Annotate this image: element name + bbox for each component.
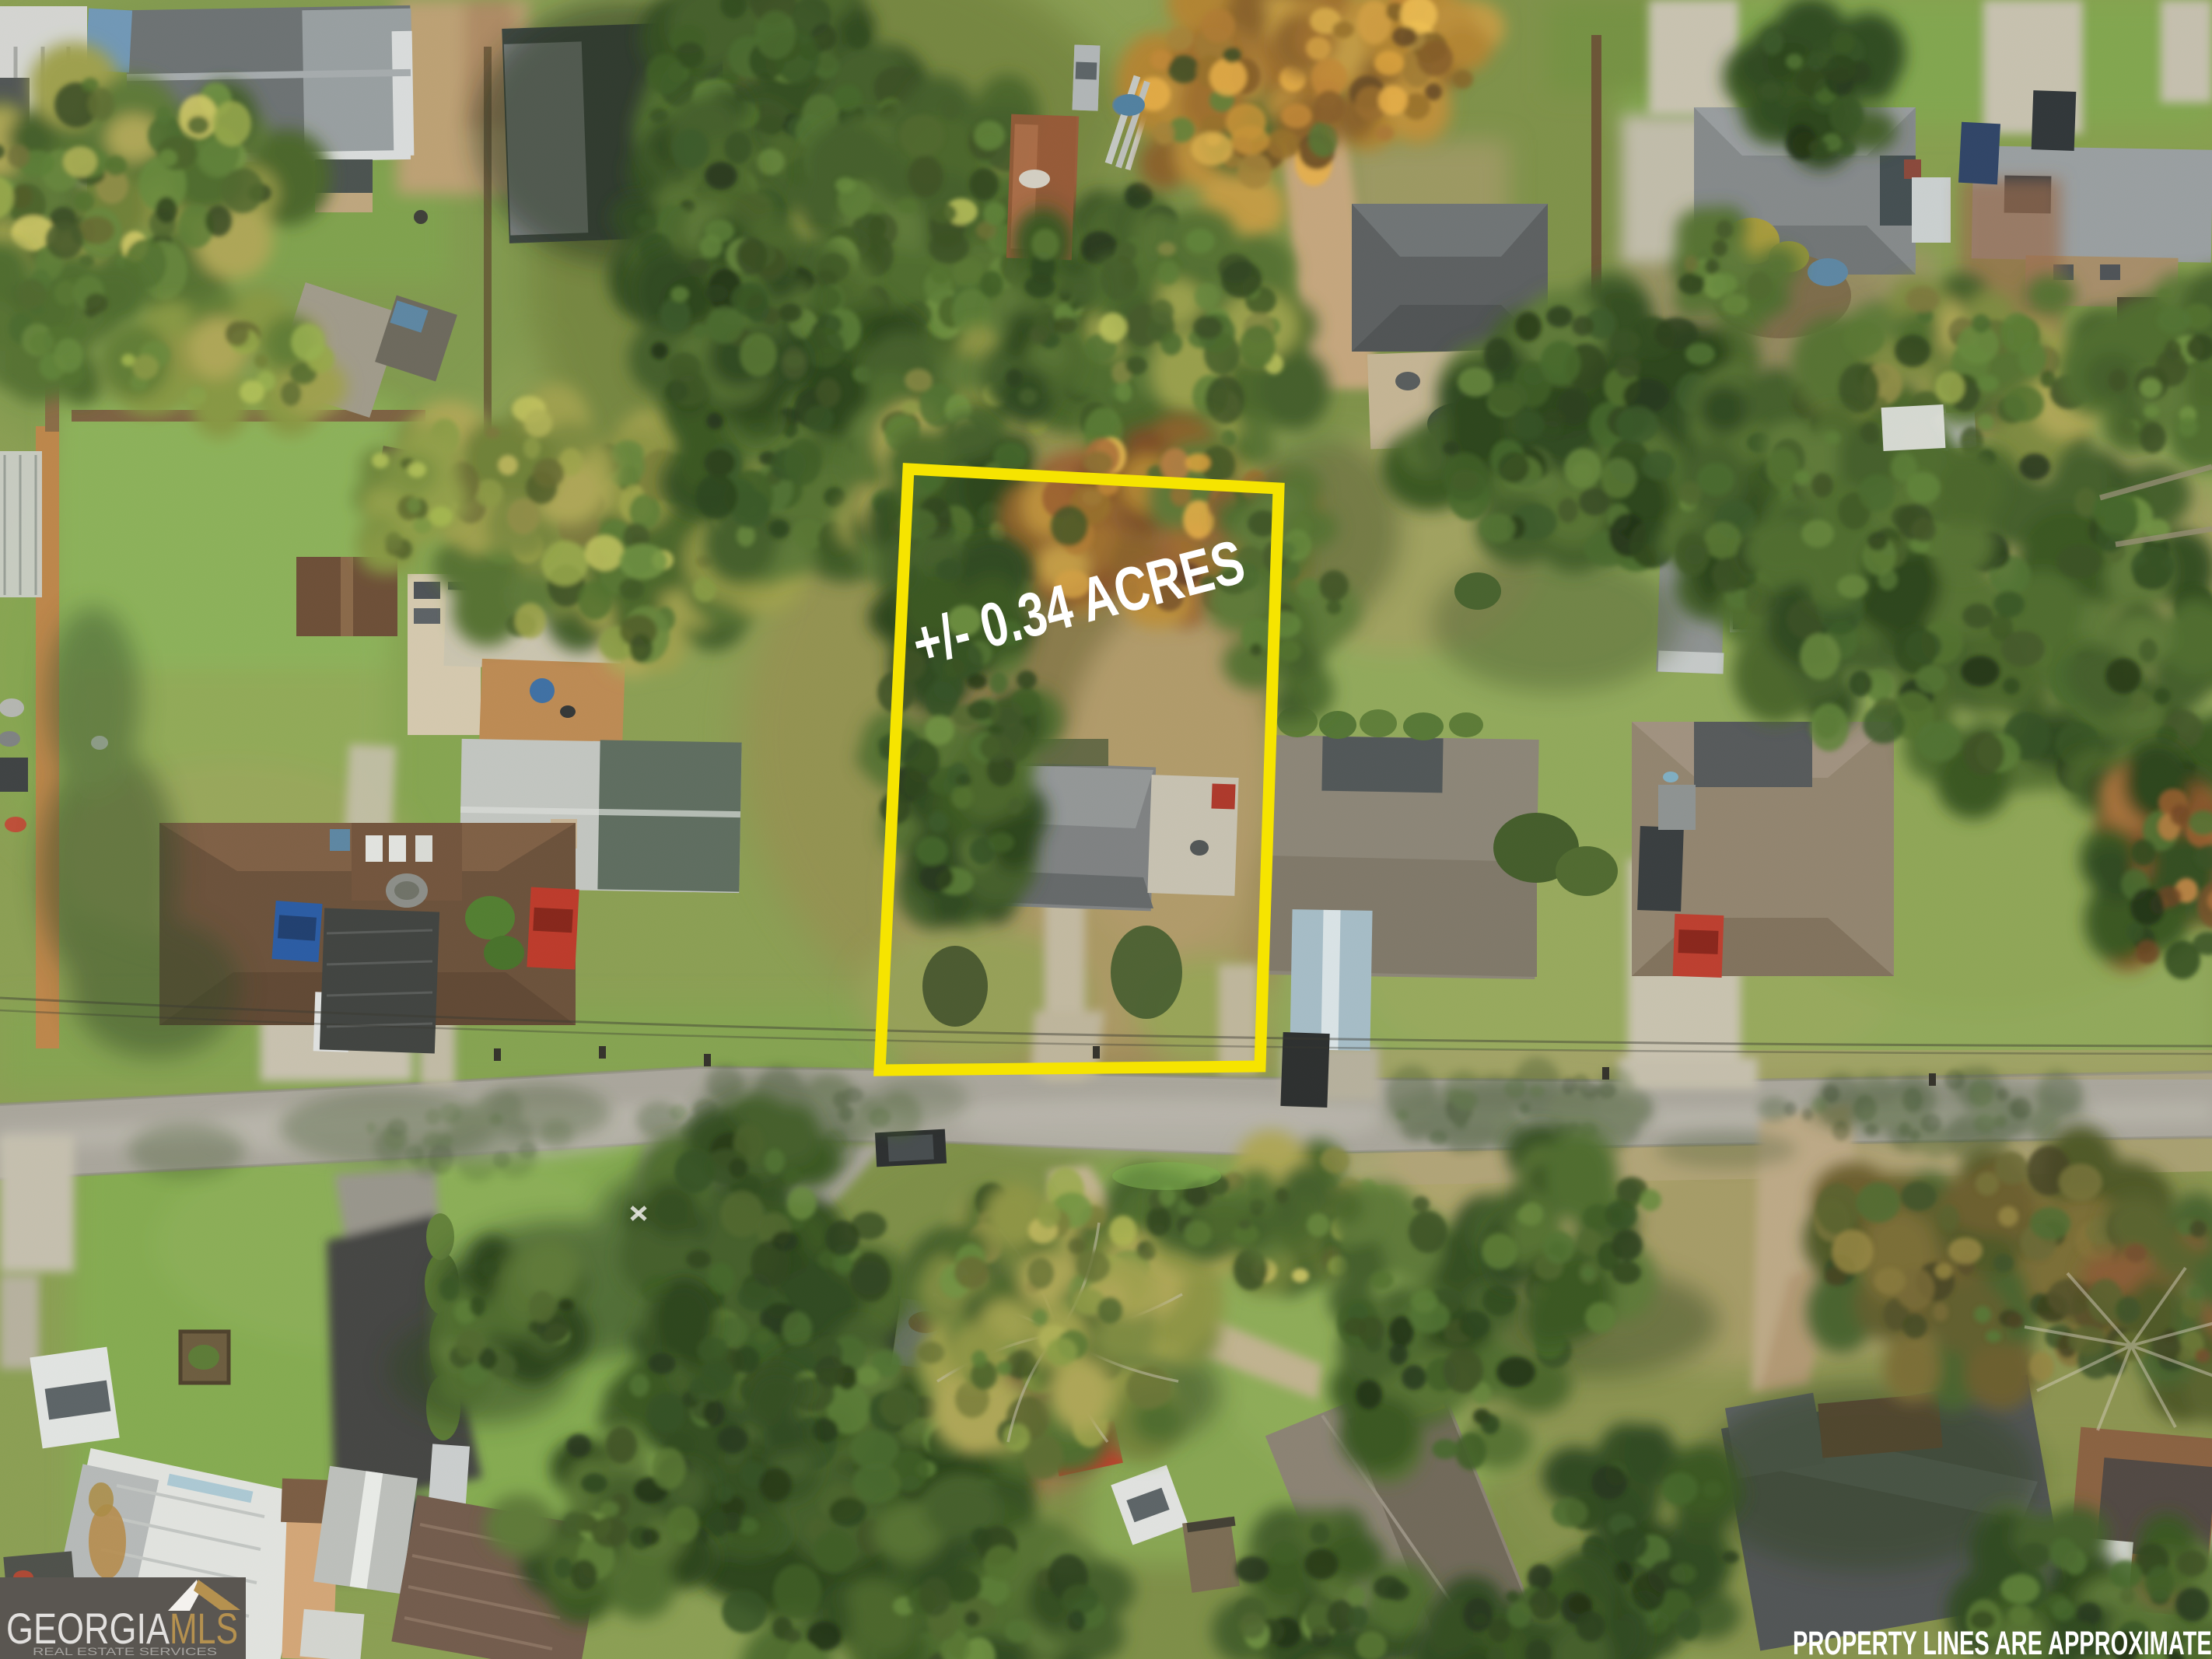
svg-text:REAL ESTATE SERVICES: REAL ESTATE SERVICES — [33, 1645, 217, 1657]
svg-text:PROPERTY LINES ARE APPROXIMATE: PROPERTY LINES ARE APPROXIMATE — [1793, 1625, 2212, 1659]
